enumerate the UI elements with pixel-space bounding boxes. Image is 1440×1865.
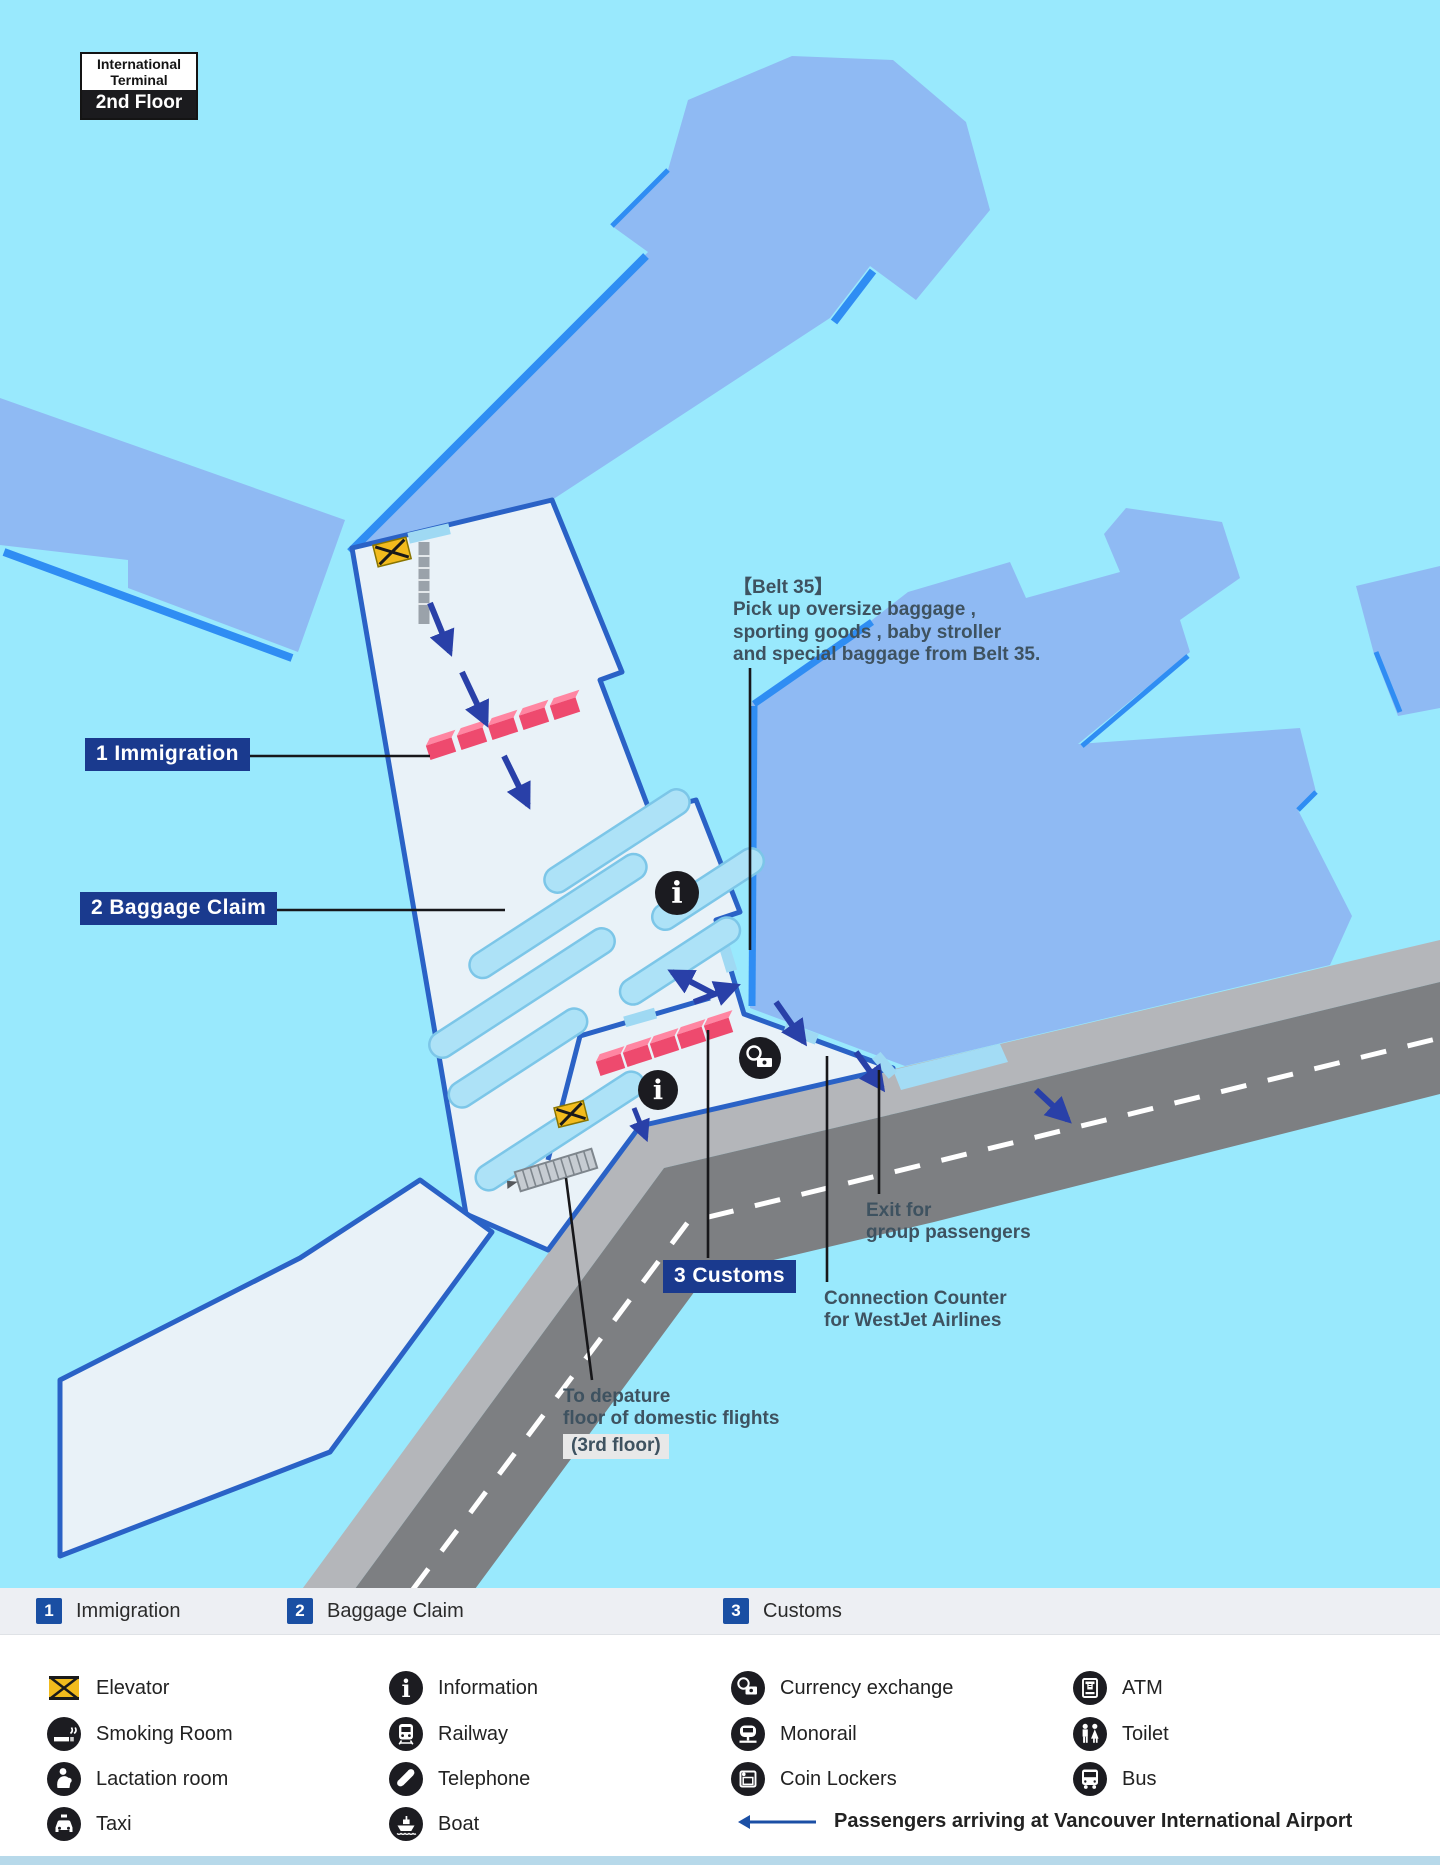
legend-atm: ATM [1072,1670,1163,1706]
atm-icon [1072,1670,1108,1706]
legend-information: i Information [388,1670,538,1706]
legend-coin-lockers: Coin Lockers [730,1761,897,1797]
entry-escalator [418,542,430,624]
number-badge-2: 2 [287,1598,313,1624]
telephone-icon [388,1761,424,1797]
terminal-map: i i [0,0,1440,1588]
number-badge-3: 3 [723,1598,749,1624]
legend-boat: Boat [388,1806,479,1842]
legend-railway: Railway [388,1716,508,1752]
belt35-annotation: 【Belt 35】 Pick up oversize baggage , spo… [733,577,1040,667]
floor-number: 2nd Floor [82,90,196,118]
monorail-icon [730,1716,766,1752]
toilet-icon [1072,1716,1108,1752]
legend-customs: 3 Customs [723,1598,842,1624]
information-icon: i [655,871,699,915]
information-icon: i [638,1070,678,1110]
legend-monorail: Monorail [730,1716,857,1752]
customs-label: 3 Customs [663,1260,796,1293]
exit-group-annotation: Exit for group passengers [866,1200,1031,1245]
legend-lactation-room: Lactation room [46,1761,228,1797]
svg-text:i: i [671,876,682,911]
airport-terminal-map-page: i i International Terminal [0,0,1440,1865]
immigration-label: 1 Immigration [85,738,250,771]
terminal-name: International Terminal [82,54,196,90]
baggage-claim-label: 2 Baggage Claim [80,892,277,925]
legend-bus: Bus [1072,1761,1156,1797]
currency-exchange-icon [730,1670,766,1706]
lactation-room-icon [46,1761,82,1797]
legend-taxi: Taxi [46,1806,132,1842]
arrival-note: Passengers arriving at Vancouver Interna… [736,1810,1352,1833]
svg-text:i: i [653,1075,663,1106]
coin-lockers-icon [730,1761,766,1797]
legend-immigration: 1 Immigration [36,1598,180,1624]
legend-numbered-band [0,1588,1440,1634]
floor-badge: International Terminal 2nd Floor [80,52,198,120]
information-icon: i [388,1670,424,1706]
legend-telephone: Telephone [388,1761,530,1797]
legend-baggage-claim: 2 Baggage Claim [287,1598,464,1624]
currency-exchange-icon [739,1037,781,1079]
legend-elevator: Elevator [46,1670,169,1706]
boat-icon [388,1806,424,1842]
arrival-arrow-icon [736,1811,818,1833]
bottom-strip [0,1856,1440,1865]
departure-annotation: To depature floor of domestic flights [563,1386,779,1431]
departure-floor-chip: (3rd floor) [563,1434,669,1459]
connection-counter-annotation: Connection Counter for WestJet Airlines [824,1288,1007,1333]
number-badge-1: 1 [36,1598,62,1624]
legend-toilet: Toilet [1072,1716,1169,1752]
svg-text:i: i [401,1674,410,1703]
bus-icon [1072,1761,1108,1797]
legend-smoking-room: Smoking Room [46,1716,233,1752]
taxi-icon [46,1806,82,1842]
smoking-room-icon [46,1716,82,1752]
railway-icon [388,1716,424,1752]
elevator-icon [46,1670,82,1706]
legend-currency-exchange: Currency exchange [730,1670,953,1706]
